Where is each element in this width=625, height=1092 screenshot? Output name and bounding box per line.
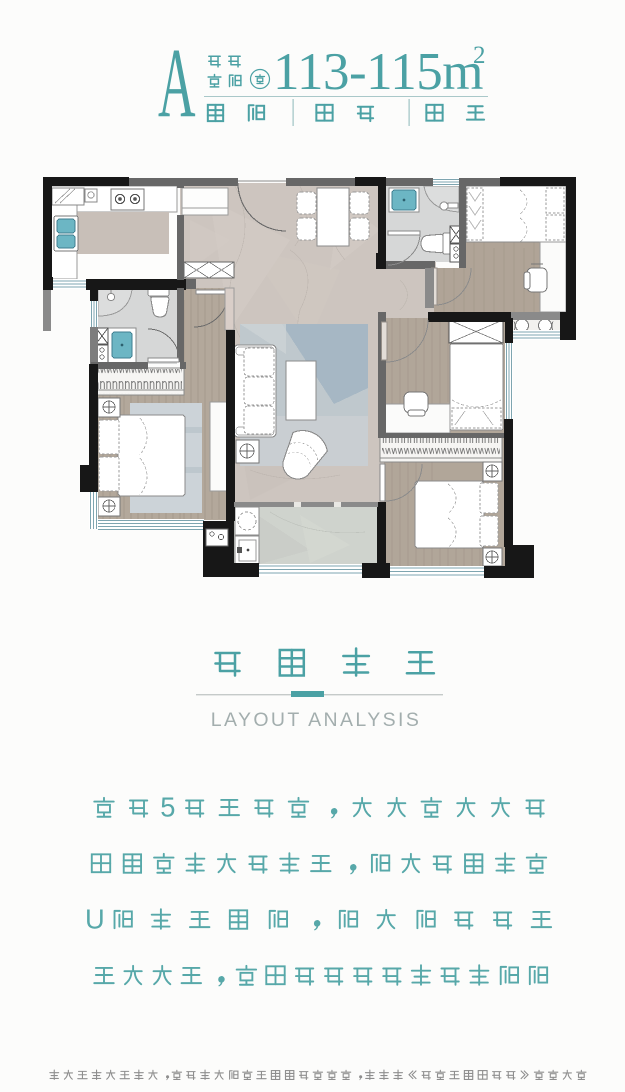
- svg-text:113-115m: 113-115m: [273, 43, 483, 101]
- svg-text:U: U: [85, 903, 105, 934]
- svg-text:2: 2: [473, 42, 486, 69]
- svg-text:A: A: [158, 28, 196, 138]
- svg-text:LAYOUT ANALYSIS: LAYOUT ANALYSIS: [211, 709, 422, 731]
- svg-text:5: 5: [160, 791, 175, 822]
